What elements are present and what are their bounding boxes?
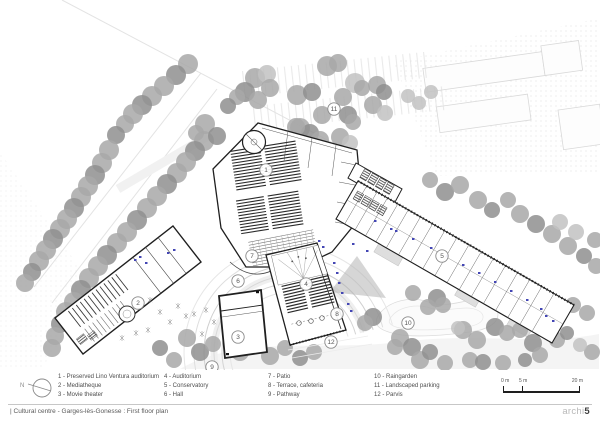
tree	[552, 214, 568, 230]
tree	[220, 98, 236, 114]
tree	[469, 191, 487, 209]
tree	[205, 336, 221, 352]
logo-text-light: archi	[562, 406, 584, 417]
scale-label-5: 5 m	[519, 378, 527, 384]
tree	[303, 83, 321, 101]
tree	[345, 114, 361, 130]
legend-item: 4 - Auditorium	[164, 373, 208, 382]
tree	[292, 350, 308, 366]
legend-item: 5 - Conservatory	[164, 382, 208, 391]
svg-text:8: 8	[335, 311, 339, 318]
legend-item: 1 - Preserved Lino Ventura auditorium	[58, 373, 159, 382]
building-movie-theater	[219, 290, 267, 358]
scale-bar: 0 m 5 m 20 m	[501, 376, 583, 396]
tree	[422, 172, 438, 188]
footer-divider	[8, 404, 592, 405]
sheet-title: | Cultural centre - Garges-lès-Gonesse :…	[10, 408, 168, 415]
plan-marker-10: 10	[402, 317, 414, 329]
tree	[412, 96, 426, 110]
svg-text:9: 9	[210, 364, 214, 370]
tree	[484, 202, 500, 218]
tree	[166, 352, 182, 368]
tree	[208, 127, 226, 145]
site-plan: 123456789101112	[0, 0, 600, 370]
scale-tick	[522, 386, 523, 391]
plan-marker-2: 2	[132, 297, 144, 309]
tree	[261, 79, 279, 97]
tree	[420, 299, 436, 315]
legend-column-2: 4 - Auditorium 5 - Conservatory 6 - Hall	[164, 373, 208, 400]
scale-tick	[503, 386, 504, 391]
tree	[532, 347, 548, 363]
north-arrow-icon	[12, 375, 56, 399]
tree	[422, 344, 438, 360]
plan-marker-5: 5	[436, 250, 448, 262]
svg-text:2: 2	[136, 300, 140, 307]
tree	[579, 305, 595, 321]
tree	[424, 85, 438, 99]
svg-text:6: 6	[236, 278, 240, 285]
legend-item: 11 - Landscaped parking	[374, 382, 440, 391]
tree	[451, 321, 465, 335]
legend-item: 12 - Parvis	[374, 391, 440, 400]
svg-text:12: 12	[327, 339, 335, 346]
plan-marker-11: 11	[328, 103, 340, 115]
legend-column-3: 7 - Patio 8 - Terrace, cafeteria 9 - Pat…	[268, 373, 323, 400]
tree	[475, 354, 491, 370]
svg-text:1: 1	[264, 167, 268, 174]
tree	[500, 192, 516, 208]
tree	[468, 331, 486, 349]
plan-marker-6: 6	[232, 275, 244, 287]
legend-item: 2 - Mediatheque	[58, 382, 159, 391]
tree	[527, 215, 545, 233]
plan-marker-1: 1	[260, 164, 272, 176]
tree	[387, 339, 403, 355]
legend: N 1 - Preserved Lino Ventura auditorium …	[0, 371, 600, 403]
svg-text:5: 5	[440, 253, 444, 260]
legend-item: 9 - Pathway	[268, 391, 323, 400]
scale-bar-line	[503, 391, 580, 393]
scale-label-0: 0 m	[501, 378, 509, 384]
tree	[152, 340, 168, 356]
logo-text-bold: 5	[584, 406, 590, 417]
plan-marker-12: 12	[325, 336, 337, 348]
tree	[573, 338, 587, 352]
plan-marker-9: 9	[206, 361, 218, 370]
legend-item: 8 - Terrace, cafeteria	[268, 382, 323, 391]
tree	[357, 315, 373, 331]
tree	[16, 274, 34, 292]
plan-marker-4: 4	[300, 278, 312, 290]
svg-text:11: 11	[331, 106, 338, 113]
legend-item: 3 - Movie theater	[58, 391, 159, 400]
tree	[188, 125, 204, 141]
building-auditorium	[266, 242, 346, 345]
tree	[405, 285, 421, 301]
tree	[518, 353, 532, 367]
tree	[587, 232, 600, 248]
plan-marker-7: 7	[246, 250, 258, 262]
tree	[43, 339, 61, 357]
tree	[178, 329, 196, 347]
archi5-logo: archi5	[562, 406, 590, 417]
svg-text:4: 4	[304, 281, 308, 288]
legend-item: 7 - Patio	[268, 373, 323, 382]
tree	[560, 326, 574, 340]
north-arrow: N	[12, 375, 56, 399]
tree	[354, 80, 370, 96]
legend-column-1: 1 - Preserved Lino Ventura auditorium 2 …	[58, 373, 159, 400]
scale-label-20: 20 m	[572, 378, 583, 384]
tree	[451, 176, 469, 194]
svg-text:3: 3	[236, 334, 240, 341]
scale-tick	[579, 386, 580, 391]
tree	[329, 54, 347, 72]
tree	[568, 224, 584, 240]
legend-item: 10 - Raingarden	[374, 373, 440, 382]
tree	[376, 84, 392, 100]
legend-column-4: 10 - Raingarden 11 - Landscaped parking …	[374, 373, 440, 400]
tree	[377, 105, 393, 121]
tree	[435, 297, 451, 313]
drawing-sheet: 123456789101112 N 1 - Preserved Lino Ven…	[0, 0, 600, 424]
tree	[511, 205, 529, 223]
svg-text:10: 10	[404, 320, 412, 327]
svg-text:7: 7	[250, 253, 254, 260]
plan-marker-8: 8	[331, 308, 343, 320]
legend-item: 6 - Hall	[164, 391, 208, 400]
plan-marker-3: 3	[232, 331, 244, 343]
north-label: N	[20, 383, 24, 389]
